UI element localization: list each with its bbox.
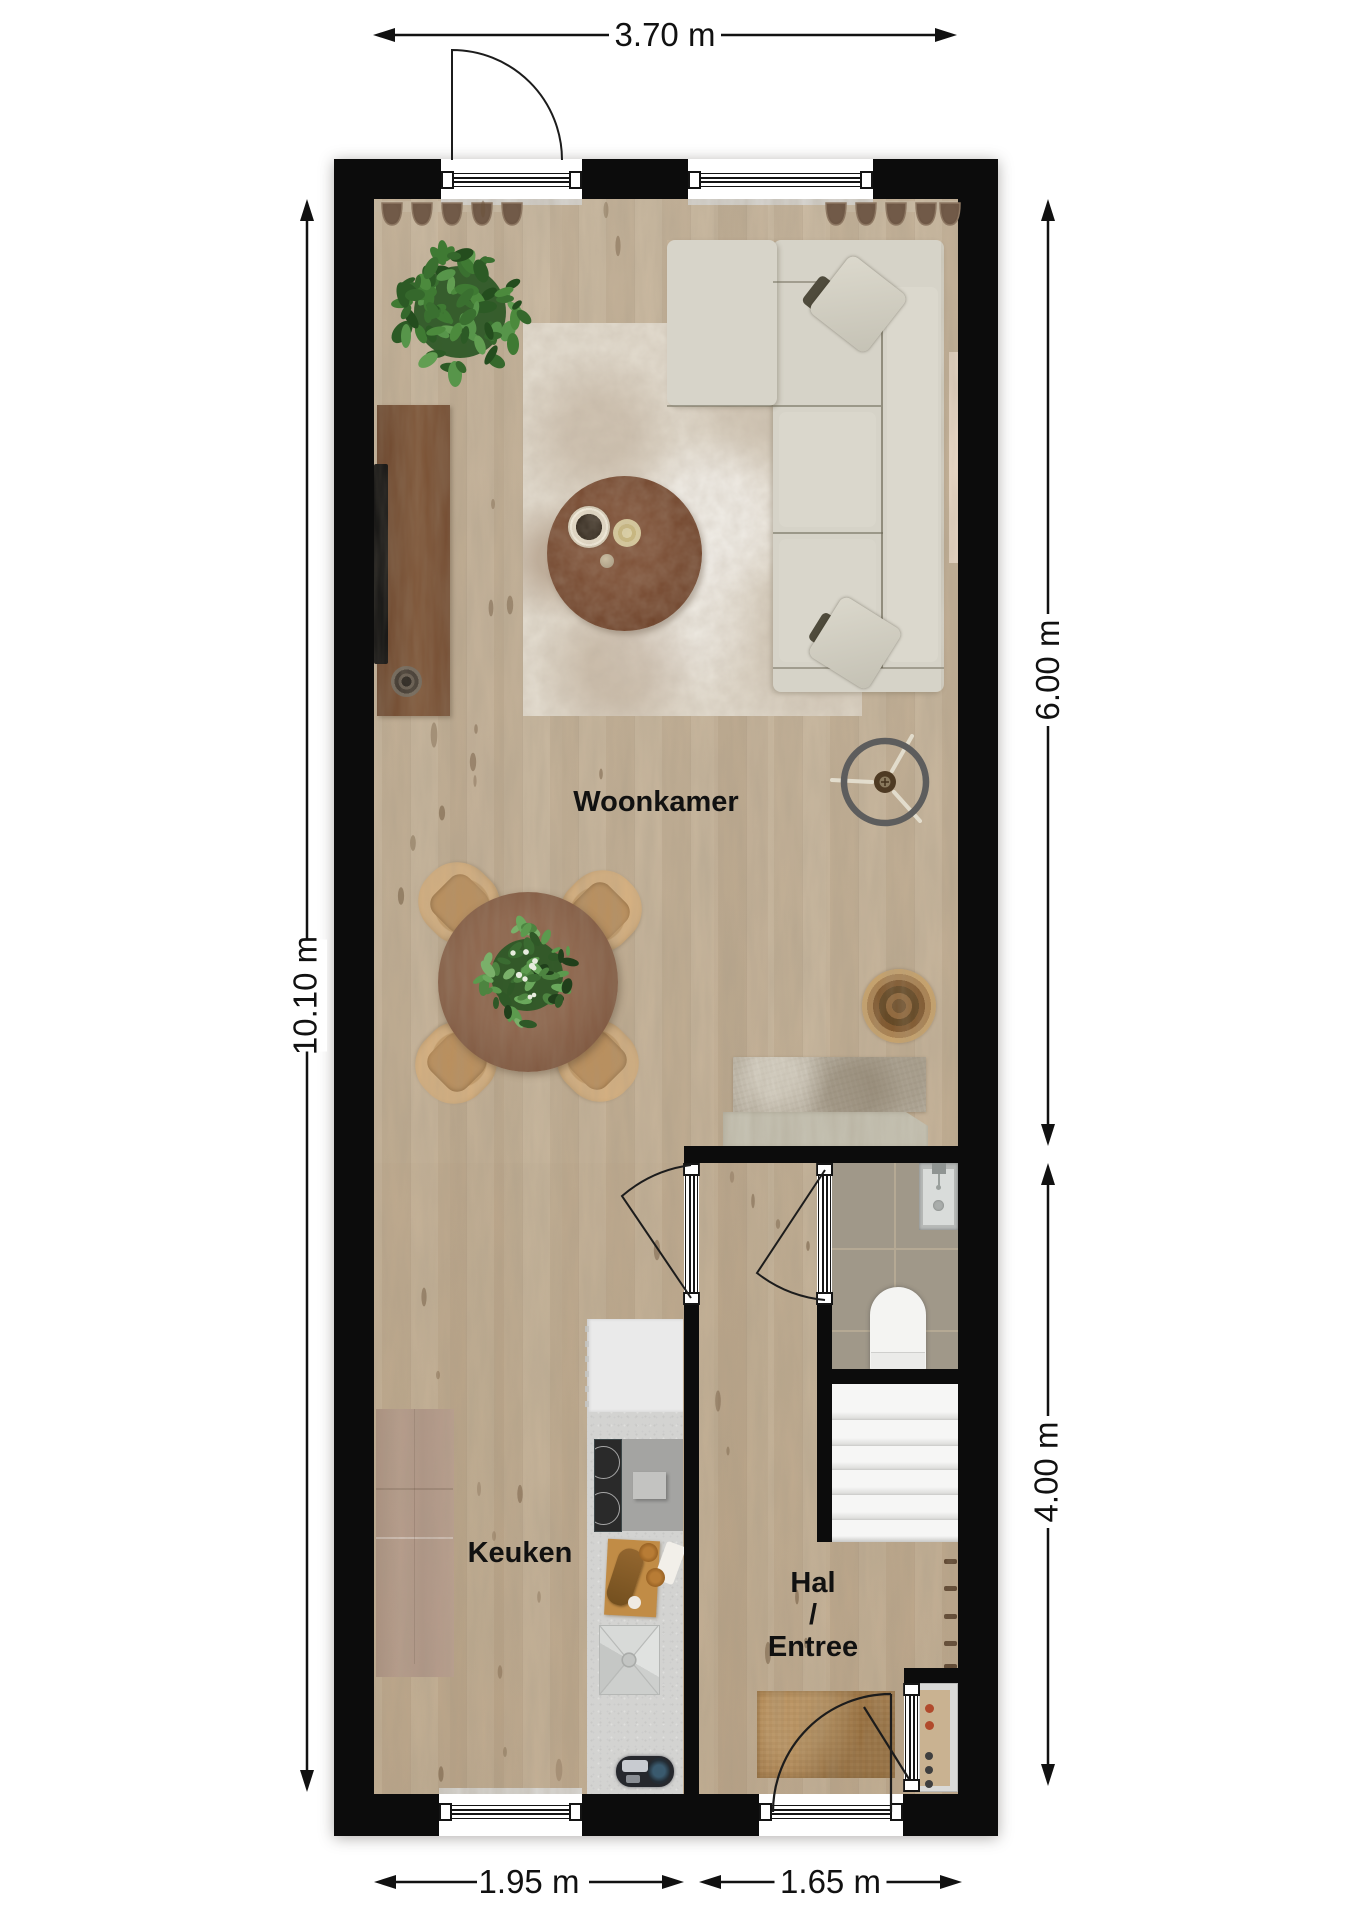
svg-text:6.00 m: 6.00 m	[1029, 620, 1066, 721]
svg-text:10.10 m: 10.10 m	[287, 936, 324, 1055]
svg-text:1.95 m: 1.95 m	[479, 1863, 580, 1900]
svg-text:/: /	[809, 1599, 817, 1631]
svg-text:Woonkamer: Woonkamer	[573, 786, 738, 818]
svg-text:Hal: Hal	[790, 1567, 835, 1599]
svg-text:4.00 m: 4.00 m	[1028, 1422, 1065, 1523]
svg-text:3.70 m: 3.70 m	[615, 16, 716, 53]
svg-text:1.65 m: 1.65 m	[780, 1863, 881, 1900]
svg-text:Keuken: Keuken	[468, 1537, 573, 1569]
svg-text:Entree: Entree	[768, 1631, 858, 1663]
